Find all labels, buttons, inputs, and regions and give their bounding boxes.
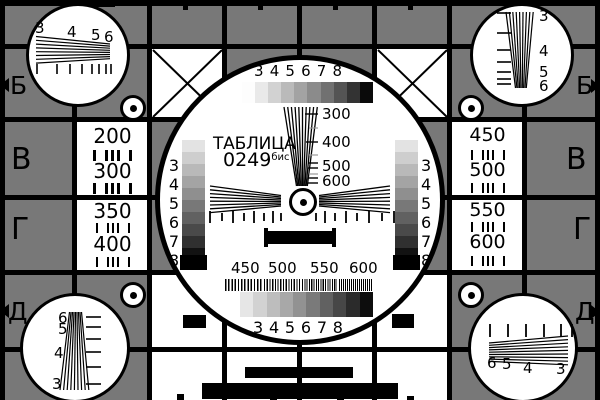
- grayscale-staircase-top: [242, 82, 373, 103]
- card-number-digits: 0249: [223, 149, 271, 171]
- row-label-left-g: Г: [11, 215, 29, 245]
- corner-wedge-label: 4: [539, 44, 549, 59]
- grayscale-step: [268, 82, 281, 103]
- grayscale-step: [255, 82, 268, 103]
- black-square-right: [393, 255, 420, 270]
- scale-label: 5: [285, 64, 295, 79]
- scale-label: 3: [253, 318, 263, 337]
- cropped-mark: [333, 6, 338, 10]
- scale-label: 6: [421, 213, 436, 232]
- grayscale-step: [395, 152, 418, 164]
- freq-label-450: 450: [231, 261, 260, 276]
- wedge-label-300: 300: [322, 107, 351, 122]
- cropped-mark: [407, 396, 414, 400]
- tick-group: [452, 183, 523, 193]
- scale-label: 8: [333, 318, 343, 337]
- corner-wedge-label: 3: [35, 21, 45, 36]
- panel-value: 550: [452, 201, 523, 220]
- grayscale-step: [347, 82, 360, 103]
- grating-450: [225, 279, 262, 291]
- grayscale-step: [395, 140, 418, 152]
- grayscale-step: [333, 292, 346, 317]
- scale-label: 8: [332, 64, 342, 79]
- arrow-left-icon: [0, 78, 9, 92]
- bullseye-target: [120, 282, 146, 308]
- grayscale-step: [253, 292, 266, 317]
- grayscale-step: [395, 164, 418, 176]
- corner-wedge-label: 3: [52, 377, 62, 392]
- grayscale-step: [320, 292, 333, 317]
- card-number-suffix: бис: [271, 152, 289, 163]
- black-square-left: [180, 255, 207, 270]
- scale-label: 3: [164, 156, 179, 175]
- freq-label-500: 500: [268, 261, 297, 276]
- grayscale-step: [395, 188, 418, 200]
- corner-wedge-label: 6: [487, 356, 497, 371]
- panel-value: 200: [77, 126, 148, 146]
- corner-wedge-label: 5: [91, 28, 101, 43]
- grayscale-step: [182, 140, 205, 152]
- corner-wedge-label: 5: [502, 357, 512, 372]
- test-card: ТАБЛИЦА 0249бис 3 4 5 6 7 8 3 4 5 6 7 8 …: [0, 0, 600, 400]
- wedge-label-400: 400: [322, 135, 351, 150]
- corner-wedge-label: 4: [67, 25, 77, 40]
- cropped-mark: [478, 0, 502, 5]
- grayscale-step: [182, 188, 205, 200]
- cropped-mark: [93, 0, 115, 7]
- row-label-left-b: Б: [10, 73, 27, 98]
- bullseye-target: [120, 95, 146, 121]
- top-scale-labels: 3 4 5 6 7 8: [254, 64, 342, 79]
- scale-label: 8: [164, 251, 179, 270]
- scale-label: 6: [301, 64, 311, 79]
- grayscale-step: [182, 164, 205, 176]
- panel-value: 600: [452, 233, 523, 252]
- panel-value: 350: [77, 201, 148, 221]
- arrow-right-icon: [591, 305, 600, 319]
- grating-550: [302, 279, 337, 291]
- grayscale-step: [280, 292, 293, 317]
- bullseye-target: [458, 282, 484, 308]
- grayscale-step: [182, 200, 205, 212]
- center-bullseye: [289, 188, 317, 216]
- scale-label: 7: [421, 232, 436, 251]
- grayscale-step: [293, 292, 306, 317]
- grayscale-step: [182, 224, 205, 236]
- grating-600: [339, 279, 373, 291]
- corner-wedge-label: 4: [523, 361, 533, 376]
- black-rect-left: [183, 315, 206, 328]
- grayscale-step: [281, 82, 294, 103]
- grayscale-step: [395, 212, 418, 224]
- grayscale-step: [182, 176, 205, 188]
- grid-vline: [147, 0, 152, 400]
- corner-wedge-label: 5: [58, 322, 68, 337]
- grayscale-staircase-bottom: [240, 292, 373, 317]
- grayscale-step: [240, 292, 253, 317]
- grayscale-step: [321, 82, 334, 103]
- grayscale-staircase-left: [182, 140, 205, 260]
- grayscale-step: [395, 176, 418, 188]
- grating-500: [264, 279, 300, 291]
- grayscale-step: [182, 152, 205, 164]
- corner-wedge-label: 3: [539, 9, 549, 24]
- corner-wedge-label: 6: [539, 79, 549, 94]
- scale-label: 5: [285, 318, 295, 337]
- grayscale-step: [334, 82, 347, 103]
- cropped-mark: [183, 6, 188, 10]
- grayscale-staircase-right: [395, 140, 418, 260]
- scale-label: 5: [421, 194, 436, 213]
- grayscale-step: [267, 292, 280, 317]
- card-number: 0249бис: [223, 151, 290, 170]
- grayscale-step: [360, 82, 373, 103]
- scale-label: 8: [421, 251, 436, 270]
- scale-label: 4: [270, 64, 280, 79]
- arrow-right-icon: [591, 79, 600, 93]
- grayscale-step: [306, 292, 319, 317]
- top-border: [0, 0, 600, 6]
- panel-value: 400: [77, 234, 148, 254]
- corner-circle-bottom-right: [468, 293, 578, 400]
- scale-label: 5: [164, 194, 179, 213]
- row-label-left-d: Д: [8, 299, 28, 324]
- scale-label: 4: [269, 318, 279, 337]
- scale-label: 6: [164, 213, 179, 232]
- bullseye-target: [458, 95, 484, 121]
- corner-wedge-label: 6: [104, 30, 114, 45]
- freq-label-600: 600: [349, 261, 378, 276]
- frequency-grating: [225, 279, 373, 291]
- tick-group: [77, 183, 148, 194]
- corner-wedge-label: 4: [54, 346, 64, 361]
- right-scale-labels: 3 4 5 6 7 8: [421, 156, 436, 250]
- tick-group: [77, 257, 148, 267]
- grayscale-step: [182, 212, 205, 224]
- grayscale-step: [395, 200, 418, 212]
- bottom-black-bar-short: [245, 367, 353, 378]
- row-label-right-v: В: [566, 145, 587, 175]
- grayscale-step: [395, 224, 418, 236]
- center-black-bar: [266, 231, 334, 244]
- freq-label-550: 550: [310, 261, 339, 276]
- corner-circle-top-right: [470, 3, 574, 107]
- grayscale-step: [294, 82, 307, 103]
- panel-value: 450: [452, 126, 523, 145]
- right-border: [595, 0, 600, 400]
- cropped-mark: [270, 396, 277, 400]
- tick-group: [452, 256, 523, 266]
- grayscale-step: [395, 236, 418, 248]
- scale-label: 7: [317, 318, 327, 337]
- cropped-mark: [258, 6, 263, 10]
- grayscale-step: [307, 82, 320, 103]
- scale-label: 7: [164, 232, 179, 251]
- cropped-mark: [177, 394, 184, 400]
- scale-label: 6: [301, 318, 311, 337]
- black-rect-right: [392, 314, 414, 328]
- grid-vline: [447, 0, 452, 400]
- scale-label: 3: [421, 156, 436, 175]
- left-border: [0, 0, 5, 400]
- scale-label: 4: [421, 175, 436, 194]
- grayscale-step: [360, 292, 373, 317]
- cropped-mark: [337, 396, 344, 400]
- row-label-right-g: Г: [573, 215, 591, 245]
- grayscale-step: [182, 236, 205, 248]
- bottom-black-bar-long: [202, 383, 398, 399]
- scale-label: 7: [317, 64, 327, 79]
- scale-label: 3: [254, 64, 264, 79]
- grayscale-step: [242, 82, 255, 103]
- panel-value: 300: [77, 161, 148, 181]
- corner-wedge-label: 3: [556, 362, 566, 377]
- corner-circle-bottom-left: [20, 293, 130, 400]
- bottom-scale-labels: 3 4 5 6 7 8: [253, 318, 343, 337]
- row-label-left-v: В: [11, 145, 32, 175]
- left-scale-labels: 3 4 5 6 7 8: [164, 156, 179, 250]
- panel-value: 500: [452, 161, 523, 180]
- wedge-label-600: 600: [322, 174, 351, 189]
- grayscale-step: [346, 292, 359, 317]
- cropped-mark: [408, 6, 413, 10]
- scale-label: 4: [164, 175, 179, 194]
